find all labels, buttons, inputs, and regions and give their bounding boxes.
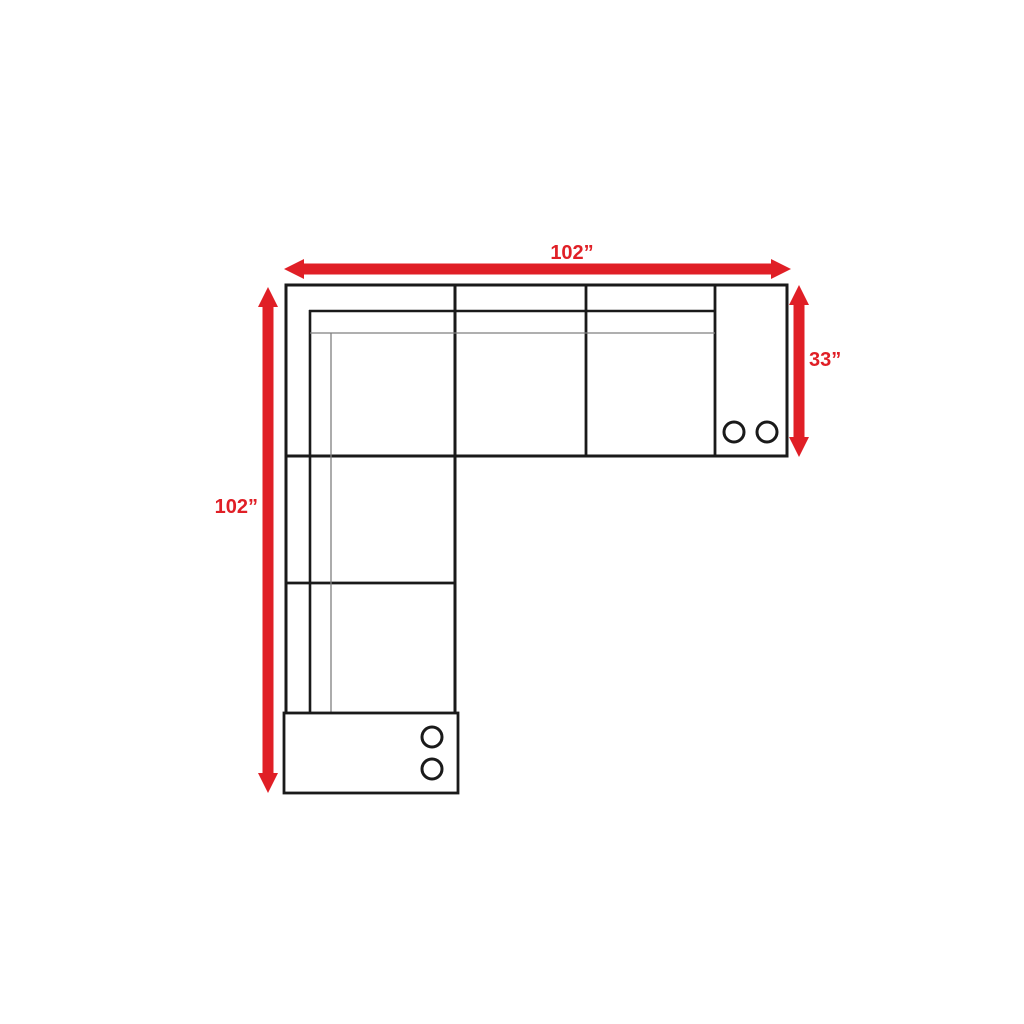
dimension-label-right: 33” xyxy=(809,349,841,371)
dimension-arrow-top xyxy=(284,259,791,279)
dimension-label-left: 102” xyxy=(215,496,258,518)
cupholder-icon xyxy=(757,422,777,442)
dimension-label-top: 102” xyxy=(550,242,593,264)
backrest-lines xyxy=(309,310,715,713)
cupholder-icon xyxy=(724,422,744,442)
cupholders xyxy=(422,422,777,779)
cupholder-icon xyxy=(422,759,442,779)
dimension-arrow-right xyxy=(789,285,809,457)
cupholder-icon xyxy=(422,727,442,747)
dimension-labels: 102” 102” 33” xyxy=(215,242,842,518)
bottom-armrest xyxy=(284,713,458,793)
floorplan-canvas: 102” 102” 33” xyxy=(0,0,1024,1024)
sectional-sofa-diagram: 102” 102” 33” xyxy=(0,0,1024,1024)
dimension-arrow-left xyxy=(258,287,278,793)
seat-dividers xyxy=(286,285,715,583)
